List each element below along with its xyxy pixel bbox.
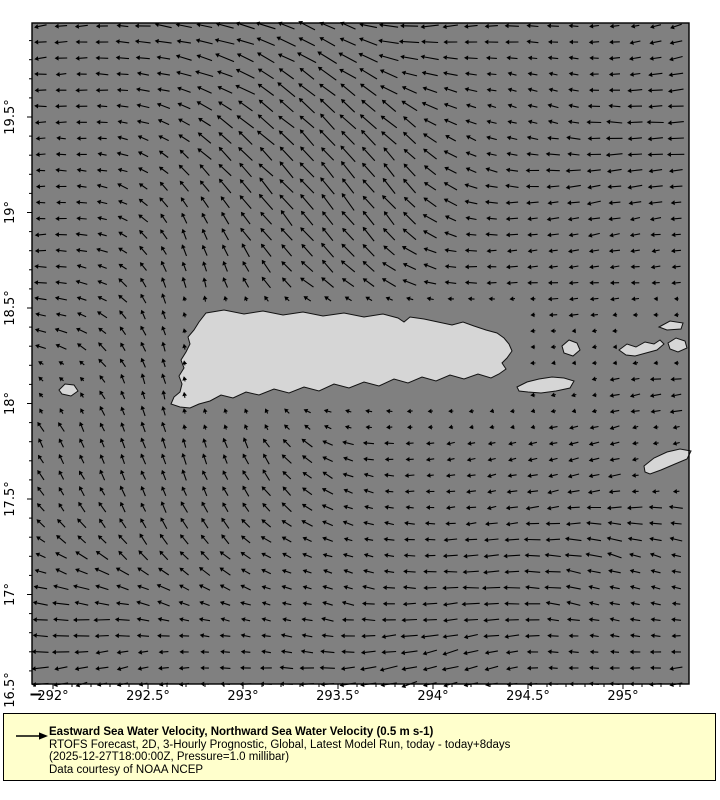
figure: 292°292.5°293°293.5°294°294.5°295° 19.5°… <box>0 0 720 800</box>
legend-line-credit: Data courtesy of NOAA NCEP <box>49 764 510 777</box>
y-tick-label: 17.5° <box>3 481 18 516</box>
legend-line-forecast: RTOFS Forecast, 2D, 3-Hourly Prognostic,… <box>49 739 510 752</box>
x-tick-label: 293° <box>227 689 258 704</box>
x-tick-label: 292.5° <box>126 689 170 704</box>
x-tick-label: 293.5° <box>316 689 360 704</box>
y-tick-label: 18° <box>3 392 18 415</box>
legend-line-time: (2025-12-27T18:00:00Z, Pressure=1.0 mill… <box>49 751 510 764</box>
x-tick-label: 294° <box>417 689 448 704</box>
x-tick-label: 294.5° <box>506 689 550 704</box>
y-tick-label: 18.5° <box>3 290 18 325</box>
velocity-map: 292°292.5°293°293.5°294°294.5°295° 19.5°… <box>0 0 720 708</box>
x-tick-labels: 292°292.5°293°293.5°294°294.5°295° <box>37 689 638 704</box>
legend-text: Eastward Sea Water Velocity, Northward S… <box>49 726 510 777</box>
y-tick-label: 19.5° <box>3 99 18 134</box>
reference-arrow-icon <box>15 729 49 743</box>
x-tick-label: 295° <box>607 689 638 704</box>
y-tick-label: 17° <box>3 583 18 606</box>
y-tick-label: 19° <box>3 201 18 224</box>
x-tick-label: 292° <box>37 689 68 704</box>
y-tick-label: 16.5° <box>3 672 18 707</box>
legend-box: Eastward Sea Water Velocity, Northward S… <box>3 713 716 781</box>
legend-title: Eastward Sea Water Velocity, Northward S… <box>49 726 510 739</box>
y-tick-labels: 19.5°19°18.5°18°17.5°17°16.5° <box>3 99 18 707</box>
